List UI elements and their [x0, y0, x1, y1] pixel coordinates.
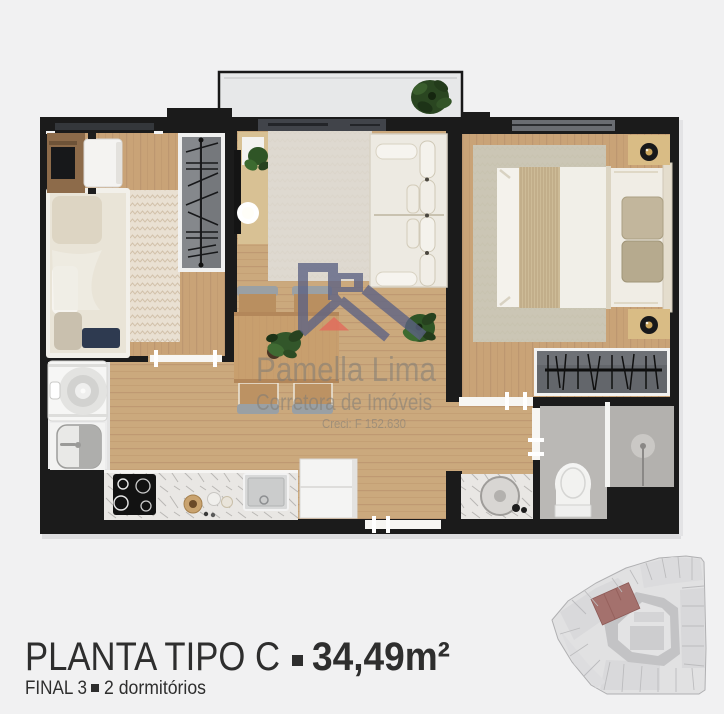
- svg-text:Corretora de Imóveis: Corretora de Imóveis: [256, 389, 432, 415]
- svg-text:34,49m²: 34,49m²: [312, 635, 450, 679]
- svg-text:FINAL 3: FINAL 3: [25, 678, 87, 699]
- svg-text:PLANTA TIPO C: PLANTA TIPO C: [25, 635, 280, 679]
- svg-text:Creci: F 152.630: Creci: F 152.630: [322, 416, 406, 431]
- svg-text:2 dormitórios: 2 dormitórios: [104, 678, 206, 699]
- svg-text:Pamella Lima: Pamella Lima: [256, 351, 436, 389]
